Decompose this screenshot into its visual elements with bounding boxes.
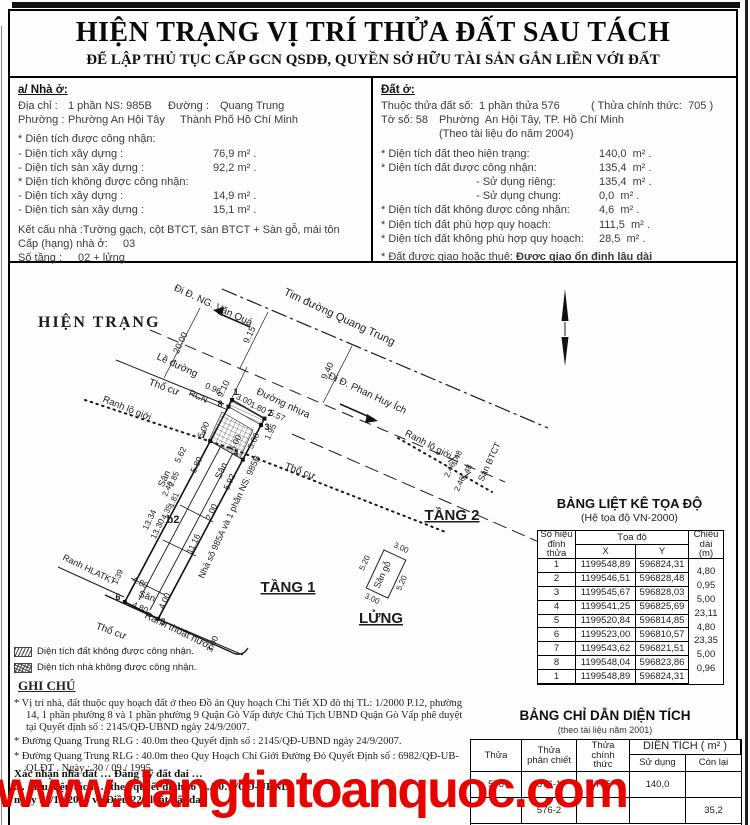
info-text: 92,2 m² . bbox=[213, 161, 256, 175]
info-text bbox=[381, 175, 476, 189]
info-text: Số tầng : bbox=[18, 251, 78, 265]
info-line: Kết cấu nhà :Tường gạch, cột BTCT, sàn B… bbox=[18, 223, 363, 237]
info-line: * Diện tích đất không phù hợp quy hoạch:… bbox=[381, 232, 728, 246]
coord-cell-x: 1199543,62 bbox=[576, 642, 636, 656]
legend: Diện tích đất không được công nhận.Diện … bbox=[14, 646, 470, 673]
coord-header-toado: Tọa độ bbox=[576, 531, 689, 545]
info-text: - Sử dụng chung: bbox=[476, 189, 599, 203]
info-text: * Diện tích đất được công nhận: bbox=[381, 161, 599, 175]
info-text: 135,4 m² . bbox=[599, 175, 652, 189]
info-text: * Diện tích đất không được công nhận: bbox=[381, 203, 599, 217]
coord-table-title: BẢNG LIỆT KÊ TỌA ĐỘ bbox=[537, 496, 722, 511]
info-text: 03 bbox=[123, 237, 135, 251]
coord-cell-y: 596825,69 bbox=[636, 601, 689, 615]
note-paragraph: * Đường Quang Trung RLG : 40.0m theo Quy… bbox=[14, 736, 470, 748]
info-text: Quang Trung bbox=[220, 99, 284, 113]
coord-cell-x: 1199520,84 bbox=[576, 615, 636, 629]
info-text: 76,9 m² . bbox=[213, 147, 256, 161]
coord-cell-y: 596823,86 bbox=[636, 656, 689, 670]
house-info-lines: Địa chỉ :1 phần NS: 985BĐường :Quang Tru… bbox=[18, 99, 363, 265]
info-line: - Sử dụng riêng:135,4 m² . bbox=[381, 175, 728, 189]
info-text: Thuộc thửa đất số: bbox=[381, 99, 479, 113]
document-page: HIỆN TRẠNGTim đường Quang TrungĐi Đ. NG.… bbox=[0, 0, 750, 825]
coord-cell-y: 596821,51 bbox=[636, 642, 689, 656]
legend-item: Diện tích đất không được công nhận. bbox=[14, 646, 470, 657]
land-hatch-swatch-icon bbox=[14, 647, 32, 657]
info-line: * Diện tích đất được công nhận:135,4 m² … bbox=[381, 161, 728, 175]
coord-cell-vertex: 3 bbox=[538, 587, 576, 601]
coord-header-vertex: Số hiệuđỉnh thửa bbox=[538, 531, 576, 559]
info-text: * Đất được giao hoặc thuê: bbox=[381, 250, 516, 264]
info-text: * Diện tích đất theo hiện trạng: bbox=[381, 147, 599, 161]
legend-item: Diện tích nhà không được công nhận. bbox=[14, 662, 470, 673]
info-text: * Diện tích đất phù hợp quy hoạch: bbox=[381, 218, 599, 232]
info-line: Phường :Phường An Hội TâyThành Phố Hồ Ch… bbox=[18, 113, 363, 127]
info-text: Thành Phố Hồ Chí Minh bbox=[180, 113, 298, 127]
right-edge-line bbox=[745, 0, 748, 825]
info-line: * Diện tích đất không được công nhận:4,6… bbox=[381, 203, 728, 217]
info-line: * Diện tích không được công nhận: bbox=[18, 175, 363, 189]
coord-length-value: 23,11 bbox=[689, 609, 723, 619]
info-text: (Theo tài liệu đo năm 2004) bbox=[439, 127, 574, 141]
info-line: * Đất được giao hoặc thuê: Được giao ổn … bbox=[381, 250, 728, 264]
info-text: 140,0 m² . bbox=[599, 147, 652, 161]
notes-heading: GHI CHÚ bbox=[18, 678, 470, 694]
land-heading: Đất ở: bbox=[381, 84, 728, 96]
coord-length-value: 4,80 bbox=[689, 623, 723, 633]
coord-cell-x: 1199548,89 bbox=[576, 670, 636, 684]
info-text: - Diện tích xây dựng : bbox=[18, 189, 213, 203]
coord-length-value: 5,00 bbox=[689, 650, 723, 660]
info-line: - Diện tích sàn xây dựng :92,2 m² . bbox=[18, 161, 363, 175]
coord-cell-x: 1199523,00 bbox=[576, 628, 636, 642]
page-title: HIỆN TRẠNG VỊ TRÍ THỬA ĐẤT SAU TÁCH bbox=[14, 17, 732, 49]
coord-length-value: 0,96 bbox=[689, 664, 723, 674]
info-line: * Diện tích đất theo hiện trạng:140,0 m²… bbox=[381, 147, 728, 161]
note-paragraph: * Vị trí nhà, đất thuộc quy hoạch đất ở … bbox=[14, 698, 470, 733]
land-info-lines: Thuộc thửa đất số:1 phần thửa 576( Thửa … bbox=[381, 99, 728, 264]
land-info-box: Đất ở: Thuộc thửa đất số:1 phần thửa 576… bbox=[373, 78, 736, 261]
coord-header-length: Chiều dài(m) bbox=[689, 531, 723, 559]
page-subtitle: ĐỂ LẬP THỦ TỤC CẤP GCN QSDĐ, QUYỀN SỞ HỮ… bbox=[14, 52, 732, 69]
info-text bbox=[381, 127, 439, 141]
info-text: - Sử dụng riêng: bbox=[476, 175, 599, 189]
info-line: Địa chỉ :1 phần NS: 985BĐường :Quang Tru… bbox=[18, 99, 363, 113]
coord-length-column: 4,800,955,0023,114,8023,355,000,96 bbox=[689, 559, 723, 684]
info-text: 1 phần NS: 985B bbox=[68, 99, 168, 113]
coord-cell-y: 596824,31 bbox=[636, 670, 689, 684]
info-line: * Diện tích đất phù hợp quy hoạch:111,5 … bbox=[381, 218, 728, 232]
coord-cell-vertex: 1 bbox=[538, 670, 576, 684]
info-text: 4,6 m² . bbox=[599, 203, 639, 217]
info-text: ( Thửa chính thức: 705 ) bbox=[591, 99, 713, 113]
info-text: * Diện tích được công nhận: bbox=[18, 132, 156, 146]
info-text: Được giao ổn định lâu dài bbox=[516, 250, 652, 264]
info-text: - Diện tích sàn xây dựng : bbox=[18, 161, 213, 175]
top-border-bar bbox=[12, 2, 740, 8]
coord-cell-x: 1199541,25 bbox=[576, 601, 636, 615]
coord-length-value: 23,35 bbox=[689, 636, 723, 646]
info-text: Cấp (hạng) nhà ở: bbox=[18, 237, 123, 251]
info-text: Phường : bbox=[18, 113, 68, 127]
info-text: 0,0 m² . bbox=[599, 189, 639, 203]
info-text: 1 phần thửa 576 bbox=[479, 99, 591, 113]
info-line: Cấp (hạng) nhà ở:03 bbox=[18, 237, 363, 251]
coord-length-value: 0,95 bbox=[689, 581, 723, 591]
info-text: Đường : bbox=[168, 99, 220, 113]
coord-table-subtitle: (Hệ tọa độ VN-2000) bbox=[537, 512, 722, 524]
coord-length-value: 5,00 bbox=[689, 595, 723, 605]
coordinate-table: Số hiệuđỉnh thửaTọa độXYChiều dài(m)1119… bbox=[537, 530, 724, 685]
coord-cell-x: 1199548,04 bbox=[576, 656, 636, 670]
info-text: 111,5 m² . bbox=[599, 218, 650, 232]
info-text: * Diện tích không được công nhận: bbox=[18, 175, 189, 189]
info-text: Kết cấu nhà :Tường gạch, cột BTCT, sàn B… bbox=[18, 223, 340, 237]
coord-cell-vertex: 4 bbox=[538, 601, 576, 615]
info-line: - Diện tích xây dựng :14,9 m² . bbox=[18, 189, 363, 203]
title-block: HIỆN TRẠNG VỊ TRÍ THỬA ĐẤT SAU TÁCH ĐỂ L… bbox=[10, 11, 736, 78]
area-table-subtitle: (theo tài liệu năm 2001) bbox=[470, 725, 740, 735]
area-header-dien-tich: DIỆN TÍCH ( m² ) bbox=[630, 740, 741, 755]
info-line: - Diện tích xây dựng :76,9 m² . bbox=[18, 147, 363, 161]
info-line: - Diện tích sàn xây dựng :15,1 m² . bbox=[18, 203, 363, 217]
info-text: Tờ số: 58 bbox=[381, 113, 439, 127]
info-text: * Diện tích đất không phù hợp quy hoạch: bbox=[381, 232, 599, 246]
info-line: - Sử dụng chung:0,0 m² . bbox=[381, 189, 728, 203]
info-row: a/ Nhà ở: Địa chỉ :1 phần NS: 985BĐường … bbox=[10, 78, 736, 263]
coord-header-y: Y bbox=[636, 545, 689, 559]
coord-length-value: 4,80 bbox=[689, 567, 723, 577]
coord-cell-y: 596828,48 bbox=[636, 573, 689, 587]
area-table-title: BẢNG CHỈ DẪN DIỆN TÍCH bbox=[470, 708, 740, 723]
house-hatch-swatch-icon bbox=[14, 663, 32, 673]
house-heading: a/ Nhà ở: bbox=[18, 84, 363, 96]
coord-cell-y: 596828,03 bbox=[636, 587, 689, 601]
left-edge-line bbox=[1, 26, 2, 825]
coord-cell-vertex: 2 bbox=[538, 573, 576, 587]
info-text: 15,1 m² . bbox=[213, 203, 256, 217]
coord-cell-y: 596824,31 bbox=[636, 559, 689, 573]
coord-cell-y: 596810,57 bbox=[636, 628, 689, 642]
info-text: 14,9 m² . bbox=[213, 189, 256, 203]
coord-cell-vertex: 6 bbox=[538, 628, 576, 642]
info-text: Phường An Hội Tây bbox=[68, 113, 180, 127]
info-line: Tờ số: 58Phường An Hội Tây, TP. Hồ Chí M… bbox=[381, 113, 728, 127]
info-line: Thuộc thửa đất số:1 phần thửa 576( Thửa … bbox=[381, 99, 728, 113]
info-line: * Diện tích được công nhận: bbox=[18, 132, 363, 146]
coord-cell-vertex: 5 bbox=[538, 615, 576, 629]
info-text bbox=[381, 189, 476, 203]
info-text: - Diện tích xây dựng : bbox=[18, 147, 213, 161]
coord-cell-x: 1199545,67 bbox=[576, 587, 636, 601]
coord-cell-x: 1199548,89 bbox=[576, 559, 636, 573]
legend-and-notes: Diện tích đất không được công nhận.Diện … bbox=[14, 646, 470, 778]
legend-label: Diện tích đất không được công nhận. bbox=[37, 646, 194, 657]
coord-cell-y: 596814,85 bbox=[636, 615, 689, 629]
info-line: (Theo tài liệu đo năm 2004) bbox=[381, 127, 728, 141]
watermark-text: www.dangtintoanquoc.com bbox=[0, 760, 750, 820]
house-info-box: a/ Nhà ở: Địa chỉ :1 phần NS: 985BĐường … bbox=[10, 78, 373, 261]
info-text: 28,5 m² . bbox=[599, 232, 645, 246]
coord-header-x: X bbox=[576, 545, 636, 559]
info-text: 135,4 m² . bbox=[599, 161, 652, 175]
info-line: Số tầng :02 + lửng bbox=[18, 251, 363, 265]
info-text: Phường An Hội Tây, TP. Hồ Chí Minh bbox=[439, 113, 624, 127]
info-text: 02 + lửng bbox=[78, 251, 125, 265]
coord-cell-x: 1199546,51 bbox=[576, 573, 636, 587]
coord-cell-vertex: 1 bbox=[538, 559, 576, 573]
legend-label: Diện tích nhà không được công nhận. bbox=[37, 662, 196, 673]
coord-cell-vertex: 7 bbox=[538, 642, 576, 656]
info-text: - Diện tích sàn xây dựng : bbox=[18, 203, 213, 217]
info-text: Địa chỉ : bbox=[18, 99, 68, 113]
coord-cell-vertex: 8 bbox=[538, 656, 576, 670]
